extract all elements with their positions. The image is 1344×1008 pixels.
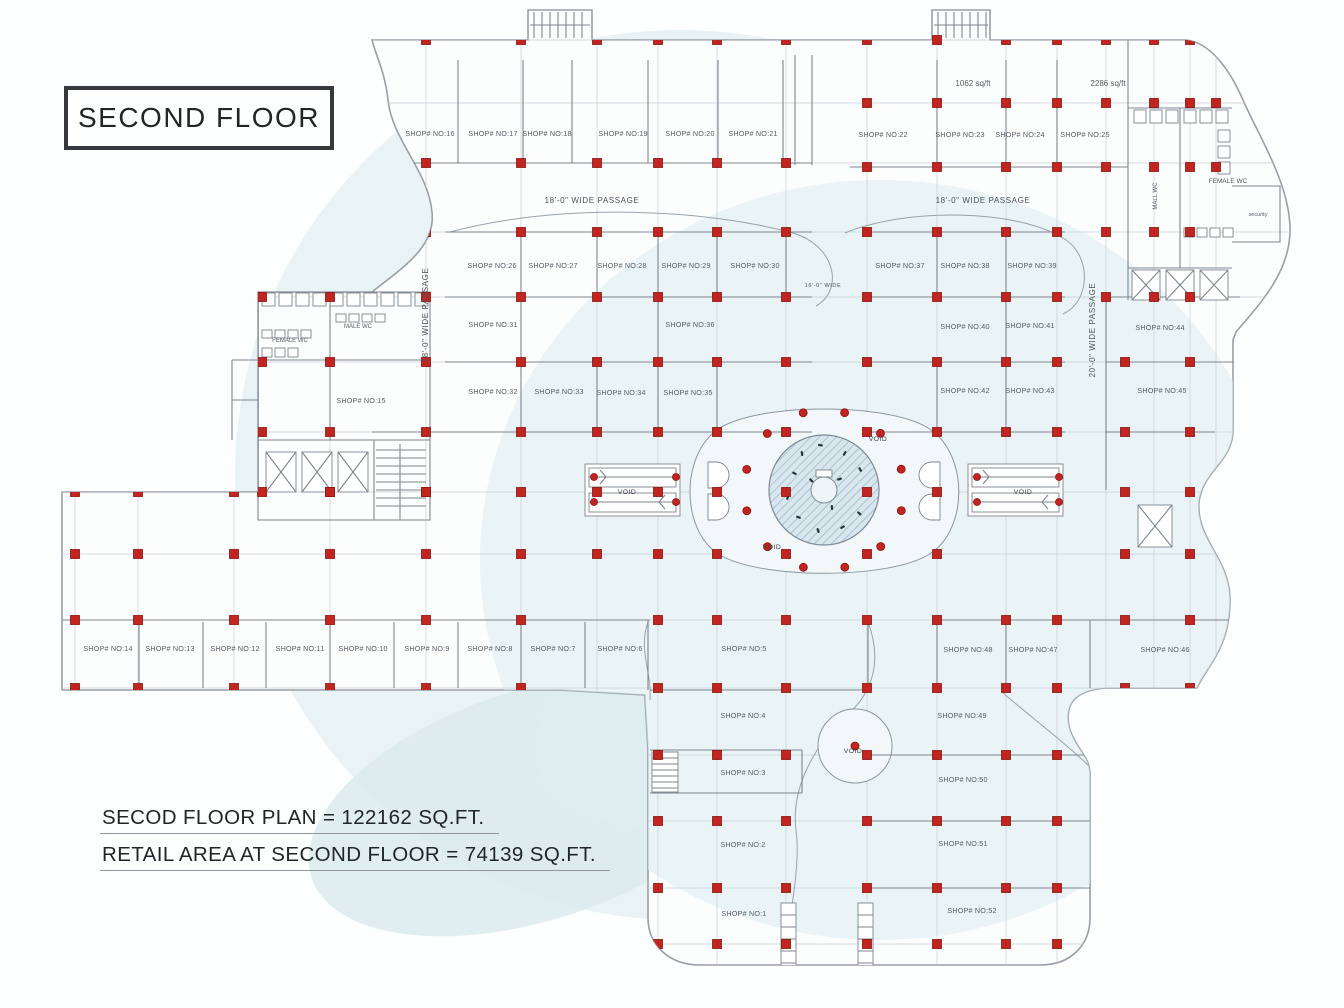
- shop-label: SHOP# NO:21: [728, 129, 777, 138]
- column-marker: [782, 293, 791, 302]
- column-marker: [422, 684, 431, 693]
- column-marker: [71, 550, 80, 559]
- column-marker: [1102, 163, 1111, 172]
- column-marker: [933, 550, 942, 559]
- column-marker: [782, 550, 791, 559]
- column-marker: [713, 940, 722, 949]
- room-label: MALL WC: [1153, 182, 1159, 210]
- void-label: VOID: [844, 748, 863, 755]
- area-label: 2286 sq/ft: [1090, 79, 1126, 88]
- column-marker: [593, 36, 602, 45]
- column-marker: [1053, 293, 1062, 302]
- column-marker: [713, 884, 722, 893]
- shop-label: SHOP# NO:47: [1008, 645, 1057, 654]
- column-marker: [654, 159, 663, 168]
- column-marker: [517, 684, 526, 693]
- column-marker: [517, 616, 526, 625]
- column-marker: [593, 293, 602, 302]
- column-marker: [1002, 940, 1011, 949]
- column-marker: [654, 228, 663, 237]
- column-marker: [230, 488, 239, 497]
- column-marker: [593, 358, 602, 367]
- column-marker: [1002, 228, 1011, 237]
- shop-label: SHOP# NO:15: [336, 396, 385, 405]
- column-marker: [1002, 684, 1011, 693]
- column-marker: [326, 293, 335, 302]
- column-marker: [1150, 228, 1159, 237]
- column-marker: [863, 36, 872, 45]
- column-marker: [654, 358, 663, 367]
- column-marker: [863, 884, 872, 893]
- shop-label: SHOP# NO:29: [661, 261, 710, 270]
- shop-label: SHOP# NO:19: [598, 129, 647, 138]
- column-marker: [1053, 428, 1062, 437]
- column-marker: [1186, 428, 1195, 437]
- column-marker: [713, 550, 722, 559]
- column-marker: [863, 550, 872, 559]
- title-box: SECOND FLOOR: [64, 86, 334, 150]
- shop-label: SHOP# NO:42: [940, 386, 989, 395]
- column-marker: [1053, 228, 1062, 237]
- column-marker: [593, 228, 602, 237]
- column-marker: [841, 409, 849, 417]
- column-marker: [422, 36, 431, 45]
- column-marker: [1002, 751, 1011, 760]
- shop-label: SHOP# NO:50: [938, 775, 987, 784]
- column-marker: [863, 751, 872, 760]
- column-marker: [654, 751, 663, 760]
- shop-label: SHOP# NO:26: [467, 261, 516, 270]
- column-marker: [1186, 550, 1195, 559]
- column-marker: [933, 884, 942, 893]
- column-marker: [713, 358, 722, 367]
- column-marker: [517, 428, 526, 437]
- shop-label: SHOP# NO:43: [1005, 386, 1054, 395]
- column-marker: [782, 884, 791, 893]
- column-marker: [654, 550, 663, 559]
- column-marker: [1002, 163, 1011, 172]
- shop-label: SHOP# NO:10: [338, 644, 387, 653]
- column-marker: [134, 684, 143, 693]
- shop-label: SHOP# NO:5: [721, 644, 766, 653]
- column-marker: [1053, 358, 1062, 367]
- column-marker: [782, 358, 791, 367]
- shop-label: SHOP# NO:14: [83, 644, 132, 653]
- shop-label: SHOP# NO:1: [721, 909, 766, 918]
- shop-label: SHOP# NO:11: [276, 644, 325, 653]
- column-marker: [933, 428, 942, 437]
- column-marker: [799, 409, 807, 417]
- column-marker: [1150, 163, 1159, 172]
- shop-label: SHOP# NO:41: [1005, 321, 1054, 330]
- column-marker: [1186, 228, 1195, 237]
- shop-label: SHOP# NO:27: [528, 261, 577, 270]
- column-marker: [1102, 293, 1111, 302]
- shop-label: SHOP# NO:35: [663, 388, 712, 397]
- column-marker: [782, 228, 791, 237]
- column-marker: [326, 684, 335, 693]
- column-marker: [782, 616, 791, 625]
- shop-label: SHOP# NO:28: [597, 261, 646, 270]
- central-court: [690, 409, 959, 573]
- room-label: FEMALE WC: [1209, 178, 1248, 185]
- column-marker: [1121, 616, 1130, 625]
- column-marker: [1150, 36, 1159, 45]
- column-marker: [517, 550, 526, 559]
- shop-label: SHOP# NO:36: [665, 320, 714, 329]
- column-marker: [933, 940, 942, 949]
- column-marker: [1002, 884, 1011, 893]
- column-marker: [1102, 36, 1111, 45]
- column-marker: [593, 488, 602, 497]
- shop-label: SHOP# NO:7: [530, 644, 575, 653]
- shop-label: SHOP# NO:45: [1137, 386, 1186, 395]
- column-marker: [713, 159, 722, 168]
- column-marker: [1002, 293, 1011, 302]
- shop-label: SHOP# NO:32: [468, 387, 517, 396]
- column-marker: [1053, 751, 1062, 760]
- column-marker: [782, 684, 791, 693]
- shop-label: SHOP# NO:48: [943, 645, 992, 654]
- column-marker: [1053, 940, 1062, 949]
- room-label: MALE WC: [344, 324, 373, 330]
- column-marker: [763, 430, 771, 438]
- column-marker: [654, 884, 663, 893]
- column-marker: [1053, 884, 1062, 893]
- column-marker: [230, 550, 239, 559]
- column-marker: [1186, 684, 1195, 693]
- column-marker: [933, 684, 942, 693]
- shop-label: SHOP# NO:52: [947, 906, 996, 915]
- shop-label: SHOP# NO:22: [858, 130, 907, 139]
- shop-label: SHOP# NO:51: [938, 839, 987, 848]
- column-marker: [134, 550, 143, 559]
- column-marker: [134, 616, 143, 625]
- column-marker: [933, 488, 942, 497]
- shop-label: SHOP# NO:16: [405, 129, 454, 138]
- shop-label: SHOP# NO:25: [1060, 130, 1109, 139]
- shop-label: SHOP# NO:46: [1140, 645, 1189, 654]
- column-marker: [1186, 616, 1195, 625]
- column-marker: [517, 293, 526, 302]
- service-strip: [232, 360, 258, 440]
- shop-label: SHOP# NO:24: [995, 130, 1044, 139]
- column-marker: [1186, 358, 1195, 367]
- shop-label: SHOP# NO:12: [210, 644, 259, 653]
- room-label: FEMALE WC: [272, 338, 308, 344]
- column-marker: [326, 358, 335, 367]
- column-marker: [654, 616, 663, 625]
- column-marker: [713, 293, 722, 302]
- column-marker: [422, 616, 431, 625]
- column-marker: [1121, 684, 1130, 693]
- column-marker: [933, 163, 942, 172]
- column-marker: [863, 99, 872, 108]
- passage-label: 18'-0" WIDE PASSAGE: [936, 196, 1031, 205]
- column-marker: [517, 36, 526, 45]
- shop-label: SHOP# NO:3: [720, 768, 765, 777]
- column-marker: [593, 550, 602, 559]
- shop-label: SHOP# NO:13: [145, 644, 194, 653]
- column-marker: [743, 465, 751, 473]
- column-marker: [863, 228, 872, 237]
- column-marker: [1186, 488, 1195, 497]
- column-marker: [933, 817, 942, 826]
- column-marker: [326, 488, 335, 497]
- column-marker: [71, 616, 80, 625]
- void-label: VOID: [1014, 489, 1033, 496]
- shop-label: SHOP# NO:6: [597, 644, 642, 653]
- column-marker: [1150, 99, 1159, 108]
- column-marker: [933, 358, 942, 367]
- column-marker: [743, 507, 751, 515]
- column-marker: [1053, 684, 1062, 693]
- column-marker: [782, 488, 791, 497]
- shop-label: SHOP# NO:31: [468, 320, 517, 329]
- elevator-right-wing: [1138, 505, 1172, 547]
- column-marker: [841, 563, 849, 571]
- column-marker: [517, 159, 526, 168]
- column-marker: [517, 358, 526, 367]
- column-marker: [782, 940, 791, 949]
- column-marker: [933, 228, 942, 237]
- column-marker: [1002, 99, 1011, 108]
- shop-label: SHOP# NO:34: [596, 388, 645, 397]
- shop-label: SHOP# NO:17: [468, 129, 517, 138]
- passage-label: 18'-0" WIDE PASSAGE: [545, 196, 640, 205]
- column-marker: [134, 488, 143, 497]
- passage-label: 20'-0" WIDE PASSAGE: [1088, 283, 1097, 378]
- column-marker: [713, 488, 722, 497]
- column-marker: [1053, 616, 1062, 625]
- column-marker: [933, 99, 942, 108]
- column-marker: [1186, 163, 1195, 172]
- column-marker: [422, 428, 431, 437]
- column-marker: [1002, 36, 1011, 45]
- column-marker: [326, 428, 335, 437]
- column-marker: [422, 488, 431, 497]
- column-marker: [713, 428, 722, 437]
- column-marker: [713, 36, 722, 45]
- summary-line-retail: RETAIL AREA AT SECOND FLOOR = 74139 SQ.F…: [100, 843, 610, 871]
- column-marker: [1121, 428, 1130, 437]
- column-marker: [71, 488, 80, 497]
- shop-label: SHOP# NO:49: [937, 711, 986, 720]
- shop-label: SHOP# NO:8: [467, 644, 512, 653]
- column-marker: [1053, 36, 1062, 45]
- column-marker: [863, 293, 872, 302]
- shop-label: SHOP# NO:38: [940, 261, 989, 270]
- column-marker: [422, 550, 431, 559]
- column-marker: [326, 616, 335, 625]
- column-marker: [654, 817, 663, 826]
- passage-label: 16'-0" WIDE: [805, 283, 842, 289]
- column-marker: [654, 488, 663, 497]
- column-marker: [1053, 99, 1062, 108]
- column-marker: [782, 817, 791, 826]
- area-label: 1062 sq/ft: [955, 79, 991, 88]
- shop-label: SHOP# NO:33: [534, 387, 583, 396]
- shop-label: SHOP# NO:20: [665, 129, 714, 138]
- column-marker: [1002, 817, 1011, 826]
- shop-label: SHOP# NO:44: [1135, 323, 1184, 332]
- column-marker: [713, 616, 722, 625]
- column-marker: [782, 428, 791, 437]
- column-marker: [1002, 358, 1011, 367]
- shop-label: SHOP# NO:37: [875, 261, 924, 270]
- column-marker: [1186, 293, 1195, 302]
- shop-label: SHOP# NO:18: [522, 129, 571, 138]
- column-marker: [517, 228, 526, 237]
- column-marker: [863, 940, 872, 949]
- column-marker: [782, 36, 791, 45]
- area-summary: SECOD FLOOR PLAN = 122162 SQ.FT. RETAIL …: [100, 806, 610, 880]
- column-marker: [593, 159, 602, 168]
- page-title: SECOND FLOOR: [78, 102, 320, 134]
- column-marker: [863, 616, 872, 625]
- column-marker: [71, 684, 80, 693]
- column-marker: [517, 488, 526, 497]
- column-marker: [1002, 428, 1011, 437]
- column-marker: [422, 159, 431, 168]
- column-marker: [1121, 488, 1130, 497]
- column-marker: [863, 358, 872, 367]
- column-marker: [258, 428, 267, 437]
- column-marker: [1053, 163, 1062, 172]
- column-marker: [799, 563, 807, 571]
- column-marker: [897, 465, 905, 473]
- column-marker: [863, 163, 872, 172]
- column-marker: [713, 228, 722, 237]
- column-marker: [877, 543, 885, 551]
- column-marker: [933, 751, 942, 760]
- column-marker: [863, 684, 872, 693]
- column-marker: [1212, 99, 1221, 108]
- void-label: VOID: [869, 436, 888, 443]
- column-marker: [1186, 99, 1195, 108]
- column-marker: [713, 751, 722, 760]
- column-marker: [593, 428, 602, 437]
- column-marker: [782, 159, 791, 168]
- column-marker: [258, 358, 267, 367]
- void-label: VOID: [763, 544, 782, 551]
- column-marker: [654, 428, 663, 437]
- column-marker: [230, 684, 239, 693]
- column-marker: [1053, 817, 1062, 826]
- room-label: security: [1249, 212, 1268, 218]
- column-marker: [326, 550, 335, 559]
- column-marker: [1121, 358, 1130, 367]
- column-marker: [863, 488, 872, 497]
- passage-label: 18'-0" WIDE PASSAGE: [421, 268, 430, 363]
- column-marker: [1102, 99, 1111, 108]
- column-marker: [1150, 293, 1159, 302]
- column-marker: [1002, 616, 1011, 625]
- column-marker: [782, 751, 791, 760]
- column-marker: [897, 507, 905, 515]
- floor-plan-page: ✦ ✦ ✦: [0, 0, 1344, 1008]
- column-marker: [258, 488, 267, 497]
- column-marker: [1102, 228, 1111, 237]
- column-marker: [230, 616, 239, 625]
- shop-label: SHOP# NO:30: [730, 261, 779, 270]
- shop-label: SHOP# NO:2: [720, 840, 765, 849]
- column-marker: [258, 293, 267, 302]
- shop-label: SHOP# NO:40: [940, 322, 989, 331]
- column-marker: [933, 616, 942, 625]
- shop-label: SHOP# NO:39: [1007, 261, 1056, 270]
- column-marker: [933, 293, 942, 302]
- column-marker: [1121, 550, 1130, 559]
- column-marker: [654, 684, 663, 693]
- summary-line-total: SECOD FLOOR PLAN = 122162 SQ.FT.: [100, 806, 499, 834]
- column-marker: [1212, 163, 1221, 172]
- shop-label: SHOP# NO:4: [720, 711, 765, 720]
- column-marker: [713, 817, 722, 826]
- shop-label: SHOP# NO:23: [935, 130, 984, 139]
- column-marker: [713, 684, 722, 693]
- column-marker: [863, 817, 872, 826]
- shop-label: SHOP# NO:9: [404, 644, 449, 653]
- column-marker: [654, 36, 663, 45]
- void-label: VOID: [618, 489, 637, 496]
- column-marker: [933, 36, 942, 45]
- column-marker: [654, 293, 663, 302]
